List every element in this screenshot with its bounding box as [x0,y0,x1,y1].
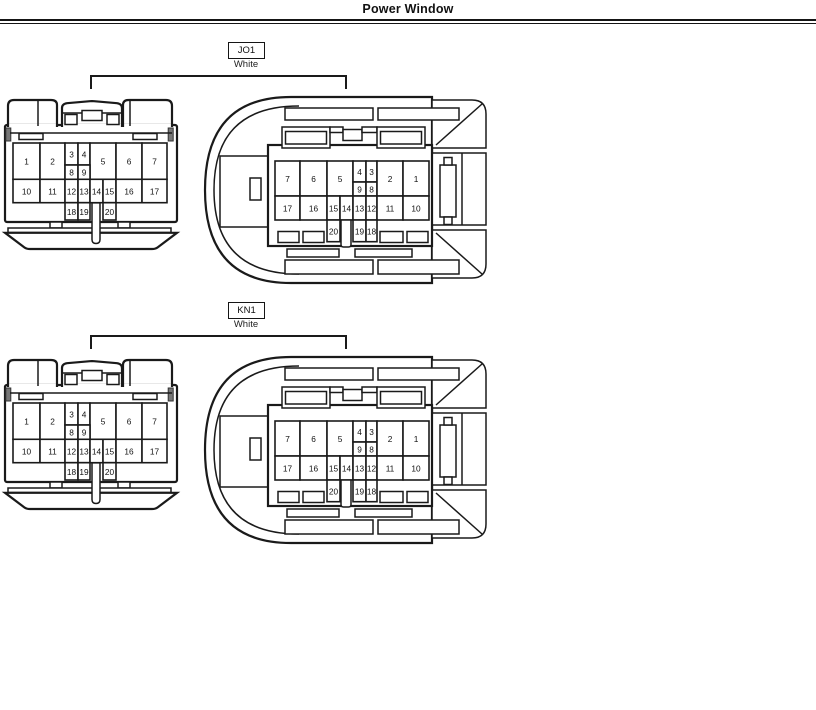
side-notch [168,388,173,401]
pin-number: 2 [50,417,55,427]
pin-number: 6 [311,174,316,184]
pin-number: 12 [67,187,77,197]
pin-number: 15 [105,447,115,457]
pin-number: 15 [329,464,339,474]
pin-number: 7 [152,417,157,427]
pin-number: 4 [82,150,87,160]
pin-number: 1 [414,434,419,444]
pin-number: 15 [329,204,339,214]
pin-number: 2 [50,157,55,167]
pin-number: 10 [22,187,32,197]
pin-number: 14 [342,204,352,214]
pin-number: 3 [369,427,374,437]
pin-number: 20 [329,486,339,496]
pin-number: 3 [369,167,374,177]
lock-lever [440,165,456,217]
pin-number: 11 [386,204,395,214]
pin-number: 15 [105,187,115,197]
pin-number: 5 [101,417,106,427]
pin-number: 20 [329,226,339,236]
connector-front-view: 1234567891011121314151617181920 [2,357,182,513]
pin-number: 13 [79,447,89,457]
pin-number: 2 [388,434,393,444]
pin-number: 14 [342,464,352,474]
pin-number: 17 [283,204,293,214]
bracket-line [90,335,347,349]
pin-number: 6 [311,434,316,444]
pin-number: 6 [127,417,132,427]
pin-number: 4 [357,167,362,177]
pin-number: 1 [414,174,419,184]
pin-number: 18 [367,226,377,236]
pin-number: 6 [127,157,132,167]
pin-number: 14 [92,187,102,197]
pin-number: 18 [367,486,377,496]
connector-front-view: 1234567891011121314151617181920 [2,97,182,253]
pin-number: 8 [69,168,74,178]
pin-number: 17 [150,447,160,457]
pin-number: 12 [367,464,377,474]
pin-number: 19 [79,467,89,477]
pin-number: 9 [82,428,87,438]
pin-number: 3 [69,150,74,160]
keyway-window [250,438,261,460]
connector-code-box: JO1 [228,42,265,59]
connector-code-box: KN1 [228,302,265,319]
connector-group-jo1: JO1 White [0,42,816,302]
pin-number: 1 [24,157,29,167]
pin-number: 13 [355,464,365,474]
page-title: Power Window [0,2,816,16]
side-notch [6,388,11,401]
pin-number: 7 [285,174,290,184]
pin-number: 10 [411,204,421,214]
pin-number: 7 [285,434,290,444]
pin-number: 5 [101,157,106,167]
pin-number: 11 [48,447,57,457]
pin-number: 16 [124,187,134,197]
connector-color-label: White [213,59,279,70]
pin-number: 16 [124,447,134,457]
pin-number: 20 [105,207,115,217]
pin-number: 4 [82,410,87,420]
lock-lever [440,425,456,477]
pin-number: 11 [386,464,395,474]
keyway-window [250,178,261,200]
pin-number: 12 [367,204,377,214]
pin-number: 5 [338,174,343,184]
pin-number: 18 [67,207,77,217]
pin-number: 12 [67,447,77,457]
pin-number: 11 [48,187,57,197]
pin-number: 19 [355,226,365,236]
title-divider-line [0,19,816,21]
wiring-diagram-page: Power Window JO1 White [0,0,816,710]
pin-number: 8 [369,185,374,195]
pin-number: 19 [355,486,365,496]
pin-number: 17 [150,187,160,197]
side-notch [168,128,173,141]
pin-number: 20 [105,467,115,477]
pin-number: 9 [82,168,87,178]
pin-number: 16 [309,204,319,214]
pin-number: 5 [338,434,343,444]
pin-number: 1 [24,417,29,427]
pin-number: 14 [92,447,102,457]
pin-number: 3 [69,410,74,420]
keyway-slot [341,480,351,507]
pin-number: 18 [67,467,77,477]
pin-number: 2 [388,174,393,184]
pin-number: 7 [152,157,157,167]
connector-color-label: White [213,319,279,330]
pin-number: 8 [369,445,374,455]
keyway-slot [92,203,100,244]
keyway-slot [92,463,100,504]
connector-rear-view: 7654398211716151413121110201918 [203,355,491,547]
pin-number: 16 [309,464,319,474]
connector-group-kn1: KN1 White [0,302,816,562]
pin-number: 13 [355,204,365,214]
pin-number: 10 [22,447,32,457]
side-notch [6,128,11,141]
title-divider-line-thin [0,23,816,24]
pin-number: 17 [283,464,293,474]
pin-number: 9 [357,445,362,455]
pin-number: 19 [79,207,89,217]
pin-number: 10 [411,464,421,474]
connector-rear-view: 7654398211716151413121110201918 [203,95,491,287]
pin-number: 8 [69,428,74,438]
bracket-line [90,75,347,89]
pin-number: 9 [357,185,362,195]
pin-number: 4 [357,427,362,437]
keyway-slot [341,220,351,247]
pin-number: 13 [79,187,89,197]
